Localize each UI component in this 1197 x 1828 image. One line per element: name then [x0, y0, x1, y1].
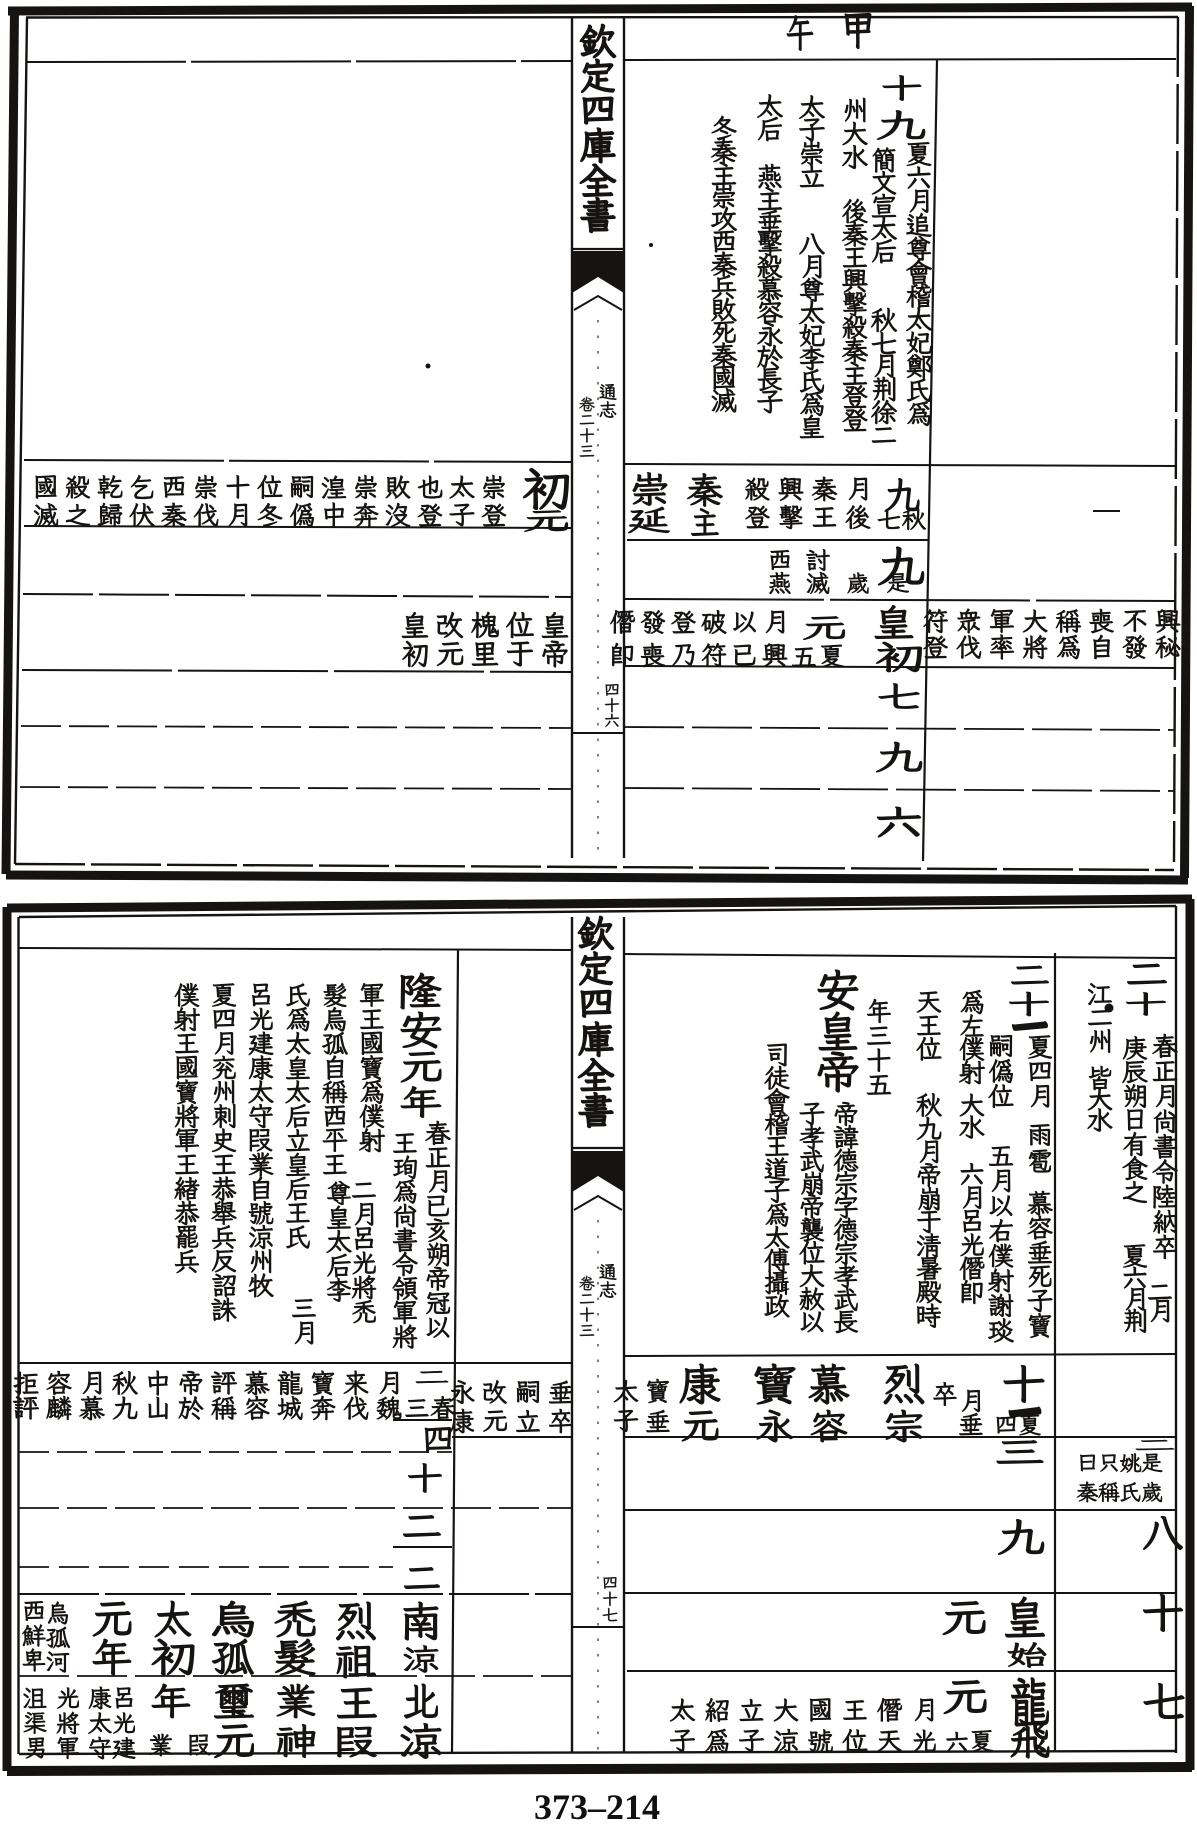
svg-text:373–214: 373–214 — [534, 1787, 660, 1823]
